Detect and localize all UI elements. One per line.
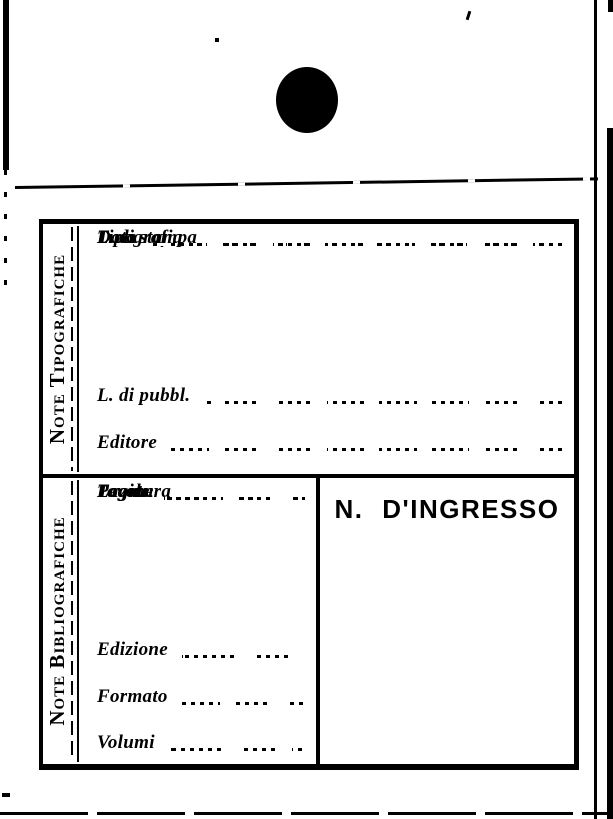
hole-punch-mark (276, 67, 338, 133)
label-column-rule-solid (77, 480, 79, 762)
ingresso-heading: N. D'INGRESSO (320, 494, 574, 525)
section-note-tipografiche: Note Tipografiche L. di pubbl. Editore L… (43, 224, 574, 474)
field-row-l-di-pubbl: L. di pubbl. (97, 382, 564, 408)
ingresso-cell: N. D'INGRESSO (320, 478, 574, 764)
field-label: Editore (97, 431, 157, 455)
dust-speck-icon (466, 11, 472, 20)
library-catalog-card-scan: Note Tipografiche L. di pubbl. Editore L… (0, 0, 613, 819)
label-column-rule-dashed (71, 227, 73, 471)
dotted-blank-line (182, 655, 305, 658)
field-label: Volumi (97, 731, 155, 755)
left-margin-bar-dashes (4, 170, 7, 290)
field-label: Legatura (97, 480, 171, 504)
dotted-blank-line (204, 401, 564, 404)
dotted-blank-line (171, 448, 564, 451)
card-table: Note Tipografiche L. di pubbl. Editore L… (39, 219, 579, 770)
left-margin-bar (3, 0, 9, 170)
field-row-volumi: Volumi (97, 729, 305, 755)
dotted-blank-line (169, 748, 305, 751)
field-row-data: Data (97, 224, 564, 250)
field-label: Edizione (97, 638, 168, 662)
dust-speck-icon (215, 38, 219, 42)
field-row-formato: Formato (97, 683, 305, 709)
top-separator-line (15, 177, 598, 189)
bottom-scan-edge-line (0, 812, 613, 815)
bottom-left-speck (2, 793, 10, 797)
field-label: Formato (97, 685, 168, 709)
label-column-rule-solid (77, 226, 79, 472)
field-row-legatura: Legatura (97, 478, 305, 504)
right-scan-edge-line (594, 0, 597, 819)
far-right-edge-tick (608, 0, 613, 12)
dotted-blank-line (185, 497, 305, 500)
dotted-blank-line (150, 243, 564, 246)
section-note-bibliografiche: Note Bibliografiche Edizione Formato Vol… (43, 478, 574, 764)
dotted-blank-line (182, 702, 305, 705)
far-right-edge-bar (607, 128, 613, 819)
field-row-editore: Editore (97, 429, 564, 455)
field-row-edizione: Edizione (97, 636, 305, 662)
field-label: Data (97, 226, 136, 250)
field-label: L. di pubbl. (97, 384, 190, 408)
label-column-rule-dashed (71, 481, 73, 761)
